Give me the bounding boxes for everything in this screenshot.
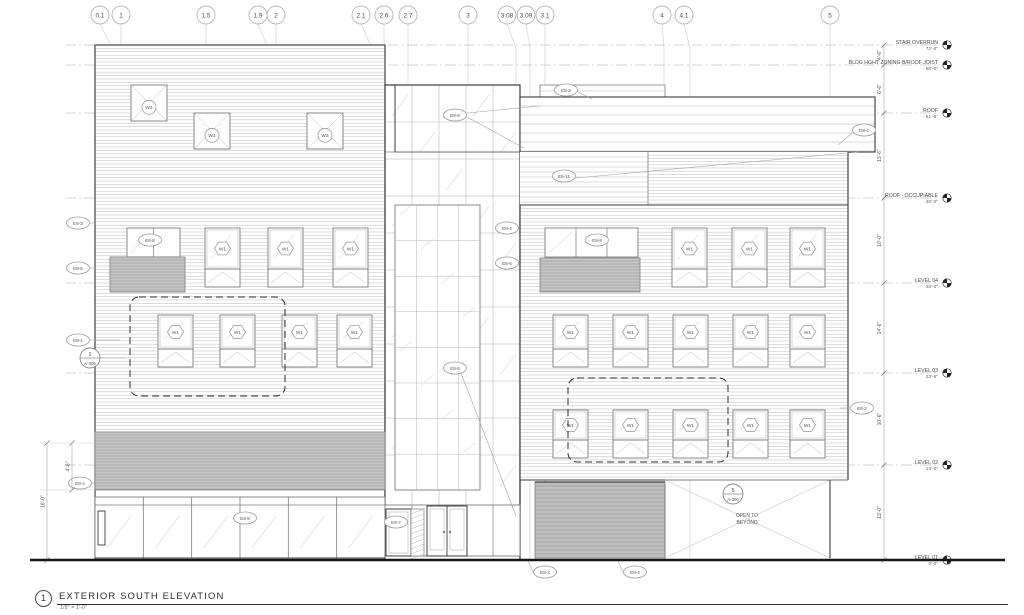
svg-text:1.5: 1.5	[202, 12, 211, 19]
svg-text:E8-8: E8-8	[592, 238, 602, 243]
svg-text:2.7: 2.7	[404, 12, 413, 19]
svg-text:ROOF: ROOF	[923, 108, 938, 114]
svg-text:38'-0": 38'-0"	[926, 284, 939, 290]
svg-text:2: 2	[274, 12, 278, 19]
window-tall: W1	[158, 315, 193, 367]
keynote-tag-E8-8: E8-8	[234, 512, 257, 524]
window-tall: W1	[205, 228, 240, 287]
svg-text:W1: W1	[804, 246, 812, 252]
window-tall: W1	[732, 228, 767, 287]
window-tall: W1	[337, 315, 372, 367]
title-underline	[57, 604, 1008, 605]
svg-text:6'-6": 6'-6"	[877, 84, 883, 94]
svg-text:OPEN TO: OPEN TO	[736, 513, 758, 519]
window-tall: W1	[613, 410, 648, 458]
svg-text:E8-8: E8-8	[240, 516, 250, 521]
keynote-tag-E8-7: E8-7	[385, 516, 408, 528]
window-tall: W1	[673, 315, 708, 367]
window-tall: W1	[220, 315, 255, 367]
level-label: ROOF61'-6"	[923, 108, 951, 120]
svg-text:1: 1	[119, 12, 123, 19]
right-dimension-chain: 4'-6"6'-6"13'-6"10'-0"14'-6"10'-6"13'-0"	[877, 42, 887, 562]
svg-text:10'-6": 10'-6"	[877, 412, 883, 425]
svg-text:W3: W3	[145, 105, 153, 111]
louver-band	[110, 257, 185, 292]
svg-text:5: 5	[731, 488, 734, 494]
svg-text:E8-9: E8-9	[450, 113, 460, 118]
svg-text:LEVEL 02: LEVEL 02	[915, 460, 938, 466]
detail-number-bubble: 1	[35, 590, 52, 607]
svg-text:W1: W1	[282, 246, 290, 252]
section-callout: 5A-306	[723, 484, 743, 504]
level-label: LEVEL 0213'-0"	[915, 460, 951, 472]
window-tall: W1	[553, 315, 588, 367]
keynote-tag-E8-3: E8-3	[528, 561, 557, 578]
svg-text:E8-4: E8-4	[502, 226, 512, 231]
svg-text:13'-0": 13'-0"	[926, 466, 939, 472]
svg-text:W1: W1	[747, 330, 755, 336]
svg-text:4'-6": 4'-6"	[66, 461, 72, 471]
svg-text:W1: W1	[347, 246, 355, 252]
keynote-tag-E8-8: E8-8	[586, 234, 609, 246]
storefront-tower	[385, 505, 520, 559]
svg-text:13'-0": 13'-0"	[877, 506, 883, 519]
svg-text:4: 4	[660, 12, 664, 19]
svg-text:BLDG HGHT ZONING B/ROOF JOIST: BLDG HGHT ZONING B/ROOF JOIST	[849, 60, 939, 66]
window-tall: W1	[613, 315, 648, 367]
svg-text:2.6: 2.6	[380, 12, 389, 19]
svg-text:W1: W1	[687, 423, 695, 429]
view-title: EXTERIOR SOUTH ELEVATION	[59, 591, 224, 602]
window-tall: W1	[790, 410, 825, 458]
drawing-sheet: 0.111.51.922.12.62.733.083.093.144.15W3W…	[0, 0, 1024, 615]
keynote-tag-E8-4: E8-4	[496, 222, 519, 234]
window-tall: W1	[333, 228, 368, 287]
svg-text:2.1: 2.1	[357, 12, 366, 19]
svg-text:4'-6": 4'-6"	[877, 50, 883, 60]
svg-text:E8-3: E8-3	[540, 570, 550, 575]
svg-text:A-306: A-306	[727, 497, 739, 502]
tower-inner-bay	[395, 205, 480, 490]
svg-text:ROOF - OCCUPIABLE: ROOF - OCCUPIABLE	[885, 193, 939, 199]
level-label: ROOF - OCCUPIABLE48'-0"	[885, 193, 951, 205]
window-tall: W1	[733, 410, 768, 458]
window-square: W3	[131, 85, 167, 121]
level-label: STAIR OVERRUN72'-6"	[896, 40, 951, 52]
keynote-tag-E8-5: E8-5	[444, 362, 467, 374]
view-scale: 1/8" = 1'-0"	[60, 605, 87, 611]
louver-band	[540, 258, 640, 292]
storefront-left	[95, 497, 385, 558]
svg-text:E8-3: E8-3	[561, 88, 571, 93]
svg-text:W1: W1	[172, 330, 180, 336]
svg-text:1: 1	[88, 352, 91, 358]
svg-text:3.09: 3.09	[520, 12, 533, 19]
svg-text:W1: W1	[296, 330, 304, 336]
double-door	[427, 506, 467, 556]
window-tall: W1	[790, 315, 825, 367]
window-tall: W1	[553, 410, 588, 458]
svg-text:W1: W1	[627, 330, 635, 336]
svg-text:E8-5: E8-5	[73, 266, 83, 271]
svg-text:BEYOND: BEYOND	[736, 520, 758, 526]
svg-text:W3: W3	[208, 133, 216, 139]
svg-text:23'-6": 23'-6"	[926, 374, 939, 380]
svg-text:W1: W1	[351, 330, 359, 336]
keynote-tag-E8-9: E8-9	[444, 109, 467, 121]
detail-number: 1	[41, 593, 46, 603]
svg-text:16'-0": 16'-0"	[41, 495, 47, 508]
svg-text:E8-4: E8-4	[75, 481, 85, 486]
garage-door	[535, 482, 665, 558]
svg-text:LEVEL 03: LEVEL 03	[915, 368, 938, 374]
svg-text:E8-2: E8-2	[857, 406, 867, 411]
svg-text:3: 3	[466, 12, 470, 19]
svg-text:W1: W1	[234, 330, 242, 336]
svg-text:W1: W1	[627, 423, 635, 429]
keynote-tag-E8-8: E8-8	[139, 234, 162, 246]
svg-text:E8-4: E8-4	[630, 570, 640, 575]
svg-text:W1: W1	[746, 246, 754, 252]
svg-text:E8-1: E8-1	[73, 338, 83, 343]
svg-text:72'-6": 72'-6"	[926, 46, 939, 52]
window-tall: W1	[673, 410, 708, 458]
svg-text:W1: W1	[747, 423, 755, 429]
svg-text:W1: W1	[804, 330, 812, 336]
svg-text:0'-0": 0'-0"	[928, 561, 938, 567]
svg-text:61'-6": 61'-6"	[926, 114, 939, 120]
svg-text:48'-0": 48'-0"	[926, 199, 939, 205]
svg-text:E8-4: E8-4	[859, 128, 869, 133]
svg-text:W1: W1	[804, 423, 812, 429]
svg-text:W3: W3	[321, 133, 329, 139]
svg-text:LEVEL 04: LEVEL 04	[915, 278, 938, 284]
level-label: LEVEL 0438'-0"	[915, 278, 951, 290]
svg-text:E8-5: E8-5	[450, 366, 460, 371]
svg-text:STAIR OVERRUN: STAIR OVERRUN	[896, 40, 939, 46]
svg-text:10'-0": 10'-0"	[877, 234, 883, 247]
keynote-tag-E8-4: E8-4	[618, 561, 647, 578]
left-dimensions: 4'-6"16'-0"	[40, 440, 95, 562]
window-tall: W1	[790, 228, 825, 287]
svg-text:5: 5	[828, 12, 832, 19]
keynote-tag-E8-5: E8-5	[67, 262, 97, 274]
svg-text:4.1: 4.1	[680, 12, 689, 19]
window-square: W3	[194, 113, 230, 149]
window-tall: W1	[672, 228, 707, 287]
svg-text:13'-6": 13'-6"	[877, 149, 883, 162]
window-tall: W1	[268, 228, 303, 287]
open-bay: OPEN TOBEYOND	[665, 480, 848, 558]
window-square: W3	[307, 113, 343, 149]
elevation-drawing: 0.111.51.922.12.62.733.083.093.144.15W3W…	[0, 0, 1024, 615]
keynote-tag-E8-5: E8-5	[496, 257, 519, 269]
svg-text:14'-6": 14'-6"	[877, 321, 883, 334]
svg-text:E8-8: E8-8	[145, 238, 155, 243]
svg-text:0.1: 0.1	[96, 12, 105, 19]
level-label: BLDG HGHT ZONING B/ROOF JOIST68'-0"	[849, 60, 951, 72]
louver-band	[95, 432, 385, 490]
level-label: LEVEL 0323'-6"	[915, 368, 951, 380]
door-sidelite-hatch	[411, 509, 424, 559]
svg-text:E8-11: E8-11	[558, 174, 570, 179]
keynote-tag-E8-4: E8-4	[69, 477, 97, 489]
svg-text:68'-0": 68'-0"	[926, 66, 939, 72]
svg-text:W1: W1	[567, 330, 575, 336]
window-tall: W1	[733, 315, 768, 367]
svg-text:1.9: 1.9	[254, 12, 263, 19]
keynote-tag-E8-3: E8-3	[67, 217, 97, 229]
view-title-block: 1 EXTERIOR SOUTH ELEVATION 1/8" = 1'-0"	[0, 588, 1024, 615]
svg-text:W1: W1	[219, 246, 227, 252]
svg-text:E8-5: E8-5	[502, 261, 512, 266]
window-tall: W1	[282, 315, 317, 367]
svg-text:A-306: A-306	[84, 361, 96, 366]
svg-text:W1: W1	[687, 330, 695, 336]
svg-text:3.1: 3.1	[541, 12, 550, 19]
svg-text:E8-3: E8-3	[73, 221, 83, 226]
svg-text:3.08: 3.08	[501, 12, 514, 19]
svg-text:E8-7: E8-7	[391, 520, 401, 525]
svg-text:W1: W1	[686, 246, 694, 252]
